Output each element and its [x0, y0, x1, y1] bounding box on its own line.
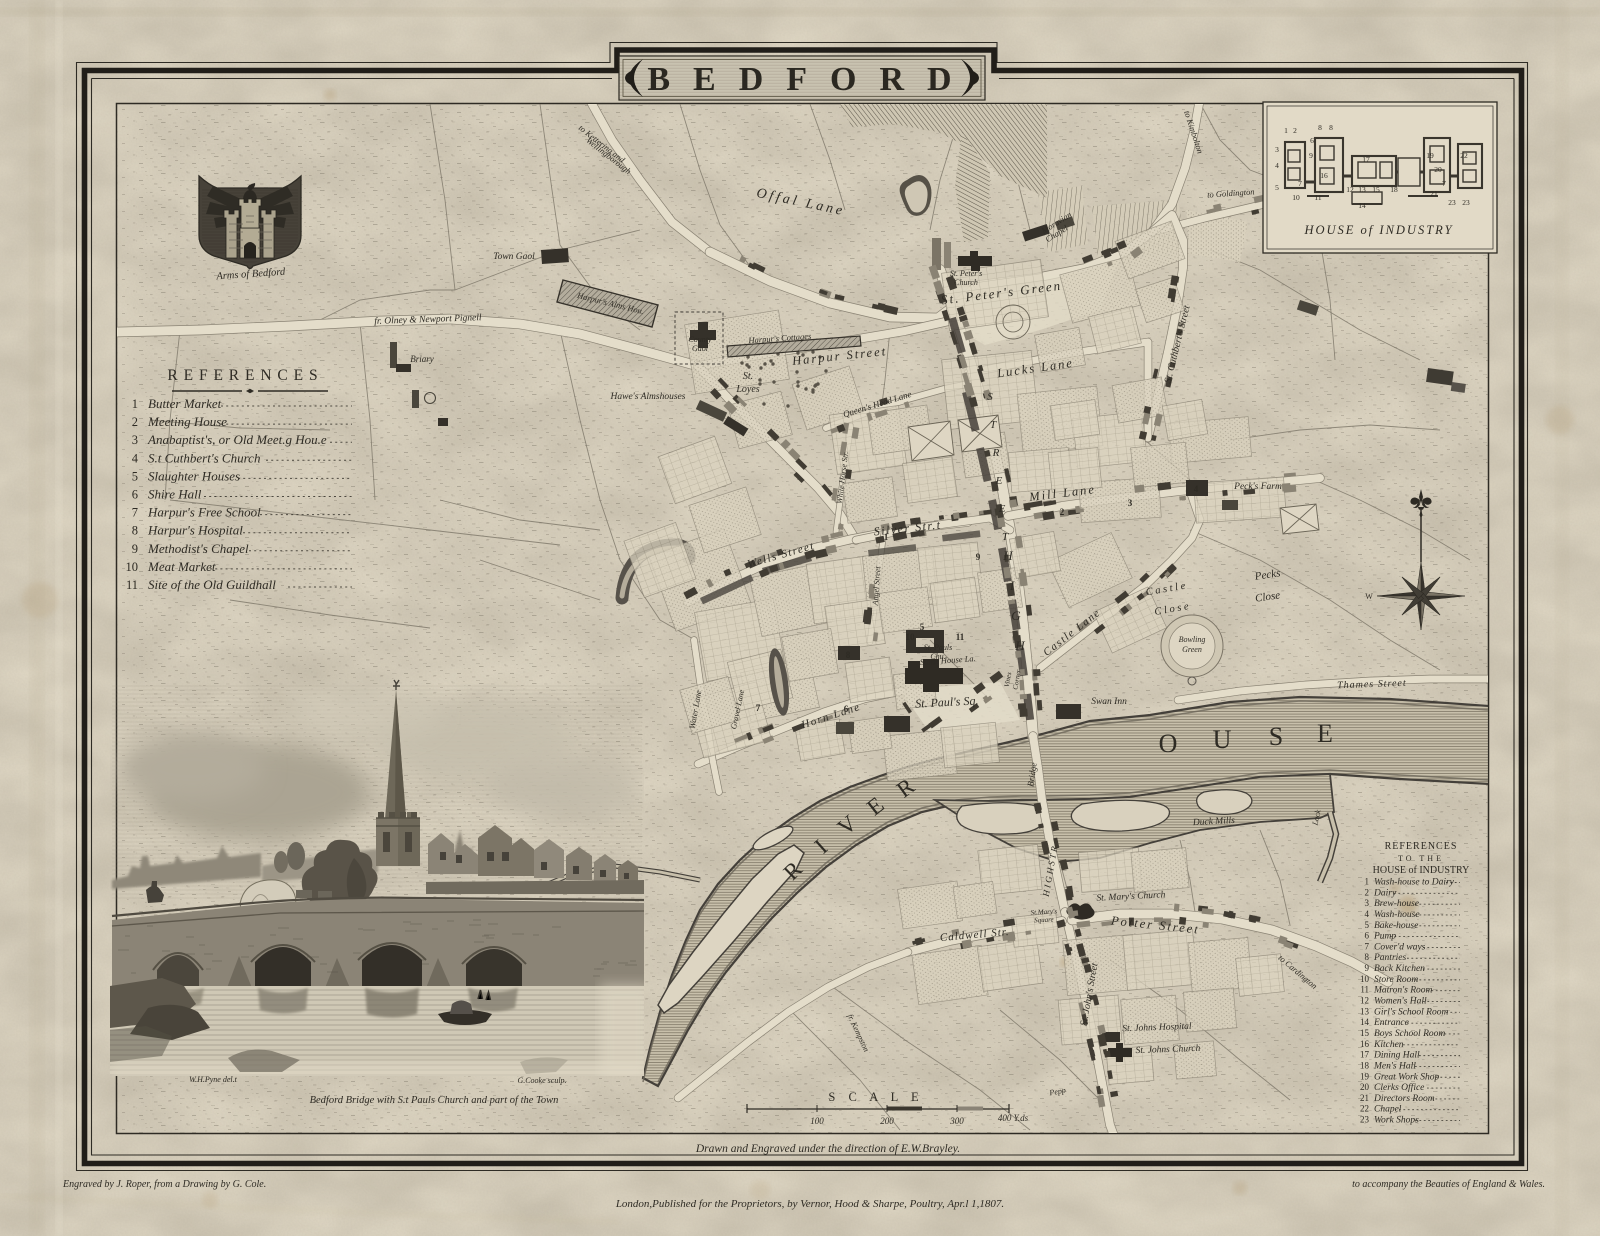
svg-text:16: 16: [1360, 1039, 1370, 1049]
svg-text:Store Room: Store Room: [1374, 975, 1418, 985]
svg-text:Kitchen: Kitchen: [1373, 1040, 1404, 1050]
svg-text:E: E: [995, 475, 1003, 487]
svg-text:U: U: [1213, 725, 1232, 754]
svg-text:9: 9: [1365, 963, 1370, 973]
svg-text:Pantries: Pantries: [1373, 953, 1406, 963]
svg-text:Harpur's Free School: Harpur's Free School: [147, 505, 261, 520]
svg-text:10: 10: [906, 632, 916, 642]
svg-text:3: 3: [1275, 145, 1279, 154]
svg-text:Meat Market: Meat Market: [147, 559, 216, 574]
svg-text:7: 7: [1365, 941, 1370, 951]
svg-text:7: 7: [132, 506, 138, 520]
svg-text:6: 6: [132, 488, 138, 502]
svg-text:Swan Inn: Swan Inn: [1091, 697, 1127, 707]
svg-text:5: 5: [132, 469, 138, 483]
svg-text:2: 2: [1293, 126, 1297, 135]
svg-text:S: S: [987, 391, 993, 403]
svg-text:23: 23: [1448, 198, 1456, 207]
svg-text:21: 21: [1430, 189, 1438, 198]
svg-text:12: 12: [1360, 996, 1369, 1006]
svg-text:1: 1: [1365, 877, 1370, 887]
svg-text:Church: Church: [954, 278, 978, 287]
svg-text:8: 8: [1365, 952, 1370, 962]
svg-text:Brew-house: Brew-house: [1374, 899, 1419, 909]
svg-text:Town Gaol: Town Gaol: [493, 252, 535, 262]
svg-text:18: 18: [1360, 1060, 1370, 1070]
svg-text:G.Cooke sculp.: G.Cooke sculp.: [517, 1076, 566, 1085]
svg-text:REFERENCES: REFERENCES: [1385, 841, 1458, 852]
svg-text:R: R: [992, 447, 1000, 459]
svg-text:17: 17: [1360, 1050, 1370, 1060]
svg-text:S.t Cuthbert's Church: S.t Cuthbert's Church: [148, 450, 260, 465]
svg-text:Men's Hall: Men's Hall: [1373, 1061, 1416, 1071]
svg-text:Bedford Bridge with S.t Pauls: Bedford Bridge with S.t Pauls Church and…: [310, 1095, 559, 1106]
svg-text:15: 15: [1360, 1028, 1370, 1038]
svg-text:Green: Green: [1182, 645, 1202, 654]
svg-text:200: 200: [880, 1116, 894, 1126]
svg-text:5: 5: [920, 622, 925, 632]
svg-text:Butter Market: Butter Market: [148, 396, 222, 411]
svg-text:3: 3: [1365, 898, 1370, 908]
svg-text:11: 11: [1314, 193, 1321, 202]
svg-text:St. Peter's: St. Peter's: [950, 269, 982, 278]
svg-text:Great Work Shop: Great Work Shop: [1374, 1072, 1440, 1082]
svg-text:Girl's School Room: Girl's School Room: [1374, 1007, 1448, 1017]
svg-text:9: 9: [132, 542, 138, 556]
svg-text:4: 4: [1275, 161, 1279, 170]
svg-text:TO THE: TO THE: [1398, 854, 1444, 863]
svg-text:4: 4: [1365, 909, 1370, 919]
svg-text:Bake-house: Bake-house: [1374, 921, 1418, 931]
svg-text:11: 11: [956, 632, 965, 642]
svg-text:9: 9: [1309, 151, 1313, 160]
svg-text:2: 2: [132, 415, 138, 429]
svg-text:10: 10: [1360, 974, 1370, 984]
svg-text:S C A L E: S C A L E: [828, 1090, 923, 1104]
svg-text:Anabaptist's, or Old Meet.g Ho: Anabaptist's, or Old Meet.g Hou.e: [147, 432, 327, 447]
svg-text:7: 7: [1298, 179, 1302, 188]
svg-text:8: 8: [1329, 123, 1333, 132]
svg-text:Wash-house: Wash-house: [1374, 910, 1420, 920]
svg-text:to accompany the Beauties of E: to accompany the Beauties of England & W…: [1352, 1179, 1545, 1190]
svg-text:W.H.Pyne del.t: W.H.Pyne del.t: [189, 1075, 237, 1084]
svg-text:London,Published for the Propr: London,Published for the Proprietors, by…: [615, 1198, 1004, 1210]
svg-text:23: 23: [1360, 1115, 1370, 1125]
svg-text:T: T: [990, 419, 997, 431]
svg-text:20: 20: [1434, 165, 1442, 174]
svg-text:Matron's Room: Matron's Room: [1373, 986, 1433, 996]
svg-text:E: E: [1317, 719, 1333, 748]
svg-text:Pump: Pump: [1373, 932, 1396, 942]
svg-text:Cover'd ways: Cover'd ways: [1374, 942, 1426, 952]
svg-text:11: 11: [126, 578, 138, 592]
svg-text:16: 16: [1320, 171, 1328, 180]
svg-text:HOUSE of INDUSTRY: HOUSE of INDUSTRY: [1303, 223, 1453, 237]
svg-text:6: 6: [1310, 136, 1314, 145]
svg-text:21: 21: [1360, 1093, 1369, 1103]
svg-text:St. Pauls: St. Pauls: [924, 643, 952, 652]
svg-text:H: H: [1002, 548, 1013, 563]
svg-text:300: 300: [949, 1116, 964, 1126]
svg-text:Briary: Briary: [410, 354, 434, 364]
svg-text:13: 13: [1360, 1006, 1370, 1016]
svg-text:12: 12: [1346, 185, 1354, 194]
svg-text:S: S: [1269, 722, 1283, 751]
svg-text:Clerks Office: Clerks Office: [1374, 1082, 1424, 1093]
svg-text:Engraved by J. Roper, from a D: Engraved by J. Roper, from a Drawing by …: [62, 1179, 266, 1190]
svg-text:17: 17: [1362, 155, 1370, 164]
svg-text:1: 1: [1284, 126, 1288, 135]
svg-text:Slaughter Houses: Slaughter Houses: [148, 468, 240, 483]
svg-text:HOUSE of INDUSTRY: HOUSE of INDUSTRY: [1373, 865, 1470, 876]
svg-text:Chu.: Chu.: [930, 652, 945, 661]
svg-text:4: 4: [1194, 484, 1199, 494]
svg-text:22: 22: [1360, 1104, 1369, 1114]
svg-text:Square: Square: [1034, 915, 1054, 924]
svg-text:Gaol: Gaol: [692, 344, 709, 353]
svg-text:Back Kitchen: Back Kitchen: [1374, 964, 1425, 974]
svg-text:1: 1: [884, 532, 889, 542]
svg-text:2: 2: [1060, 507, 1065, 517]
svg-text:Women's Hall: Women's Hall: [1374, 997, 1427, 1007]
svg-text:14: 14: [1360, 1017, 1370, 1027]
svg-text:13: 13: [1358, 185, 1366, 194]
svg-text:Harpur's Hospital: Harpur's Hospital: [147, 523, 243, 538]
svg-text:19: 19: [1426, 151, 1434, 160]
svg-text:R E F E R E N C E S: R E F E R E N C E S: [167, 367, 318, 384]
svg-text:H: H: [1014, 638, 1025, 653]
svg-text:T: T: [1002, 531, 1009, 543]
svg-text:Dining Hall: Dining Hall: [1373, 1051, 1420, 1061]
svg-text:Shire Hall: Shire Hall: [148, 487, 202, 502]
svg-text:19: 19: [1360, 1071, 1370, 1081]
svg-text:5: 5: [1275, 183, 1279, 192]
svg-text:1: 1: [132, 397, 138, 411]
svg-text:St.: St.: [743, 371, 753, 382]
svg-text:Boys School Room: Boys School Room: [1374, 1029, 1445, 1039]
svg-text:10: 10: [126, 560, 139, 574]
svg-text:E: E: [998, 503, 1006, 515]
svg-text:Work Shops: Work Shops: [1374, 1116, 1419, 1126]
svg-text:10: 10: [1292, 193, 1300, 202]
svg-text:O: O: [1159, 729, 1178, 758]
svg-text:3: 3: [1128, 498, 1133, 508]
svg-text:18: 18: [1390, 185, 1398, 194]
svg-text:100: 100: [810, 1116, 824, 1126]
svg-text:Loyes: Loyes: [735, 384, 759, 395]
svg-text:23: 23: [1462, 198, 1470, 207]
svg-text:BEDFORD: BEDFORD: [647, 61, 974, 98]
svg-text:Bowling: Bowling: [1179, 635, 1206, 644]
svg-text:8: 8: [1318, 123, 1322, 132]
svg-text:4: 4: [132, 451, 139, 465]
svg-text:Entrance: Entrance: [1373, 1018, 1409, 1028]
svg-text:400 Y.ds: 400 Y.ds: [998, 1113, 1029, 1123]
svg-text:11: 11: [1360, 985, 1369, 995]
svg-text:7: 7: [756, 703, 761, 713]
svg-text:5: 5: [1365, 920, 1370, 930]
svg-text:Methodist's Chapel: Methodist's Chapel: [147, 541, 249, 556]
svg-text:Chapel: Chapel: [1374, 1105, 1402, 1115]
svg-text:6: 6: [844, 704, 849, 714]
svg-text:W: W: [1365, 592, 1373, 601]
svg-text:Site of the Old Guildhall: Site of the Old Guildhall: [148, 577, 276, 592]
svg-text:9: 9: [976, 552, 981, 562]
svg-text:Peck's Farm: Peck's Farm: [1233, 482, 1282, 492]
svg-text:6: 6: [1365, 931, 1370, 941]
svg-text:Directors Room: Directors Room: [1373, 1094, 1435, 1104]
svg-text:8: 8: [132, 524, 138, 538]
svg-text:3: 3: [132, 433, 138, 447]
svg-text:I: I: [1009, 578, 1015, 593]
svg-text:22: 22: [1460, 151, 1468, 160]
svg-text:Hawe's Almshouses: Hawe's Almshouses: [610, 392, 686, 402]
svg-text:Meeting House: Meeting House: [147, 414, 227, 429]
svg-text:Wash-house to Dairy: Wash-house to Dairy: [1374, 878, 1455, 888]
svg-text:Dairy: Dairy: [1373, 888, 1397, 898]
svg-text:15: 15: [1372, 185, 1380, 194]
svg-text:8: 8: [846, 650, 851, 660]
svg-text:County: County: [688, 335, 712, 344]
svg-text:Drawn and Engraved under the d: Drawn and Engraved under the direction o…: [695, 1143, 960, 1155]
svg-text:G: G: [1011, 608, 1021, 623]
svg-text:20: 20: [1360, 1082, 1370, 1092]
svg-text:14: 14: [1358, 201, 1366, 210]
svg-text:2: 2: [1365, 887, 1370, 897]
svg-text:7: 7: [1442, 179, 1446, 188]
